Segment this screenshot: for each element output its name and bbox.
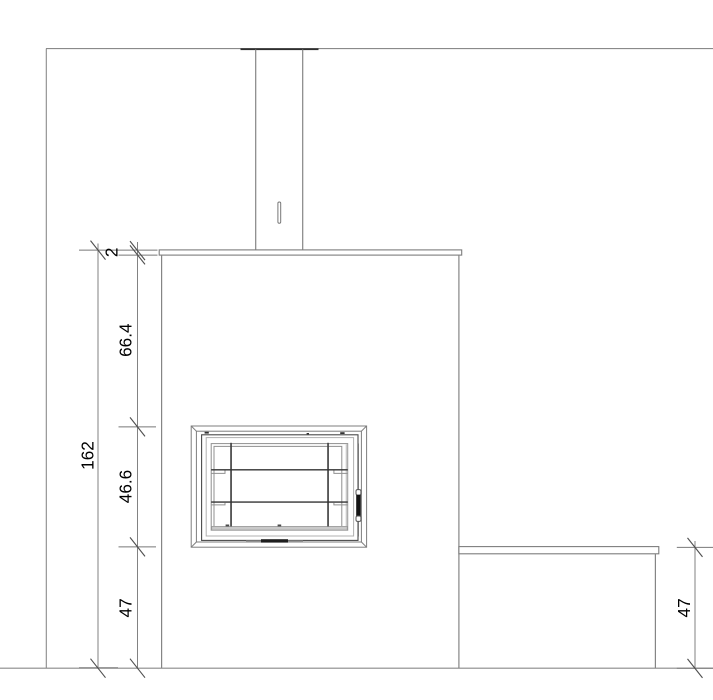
svg-text:47: 47 [674,598,694,617]
svg-text:66.4: 66.4 [115,323,135,357]
svg-text:2: 2 [102,248,122,258]
svg-text:47: 47 [116,598,136,617]
svg-text:46.6: 46.6 [115,470,135,503]
svg-text:162: 162 [77,441,97,470]
